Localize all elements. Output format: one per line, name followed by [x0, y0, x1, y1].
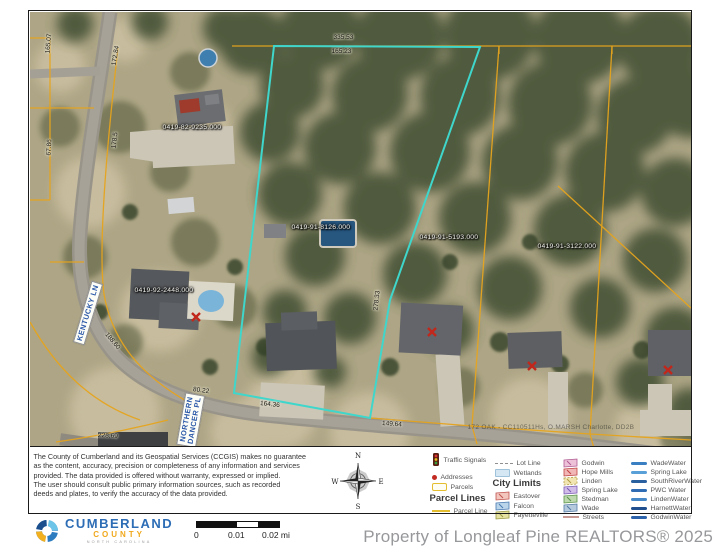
logo-state-tagline: NORTH CAROLINA	[65, 541, 173, 545]
water-line-icon	[631, 498, 647, 501]
legend-label: SouthRiverWater	[651, 478, 703, 485]
compass-n-label: N	[354, 452, 360, 460]
parcel-id-label: 0419-91-5193.000	[420, 234, 479, 241]
legend-item-traffic-signals: Traffic Signals	[432, 455, 487, 465]
parcel-line-icon	[432, 510, 450, 512]
realtors-watermark: Property of Longleaf Pine REALTORS® 2025	[363, 527, 713, 547]
logo-county-name: CUMBERLAND	[65, 517, 173, 530]
compass-star	[340, 463, 376, 499]
cumberland-county-logo: CUMBERLAND COUNTY NORTH CAROLINA	[34, 517, 173, 545]
city-flag-icon	[495, 491, 510, 501]
dimension-label: 178.5	[110, 131, 119, 148]
legend-label: Addresses	[441, 474, 473, 481]
legend-label: Spring Lake	[582, 487, 618, 494]
water-line-icon	[631, 462, 647, 465]
legend-label: HarnettWater	[651, 505, 691, 512]
water-line-icon	[631, 507, 647, 510]
dimension-label: 228.69	[97, 432, 117, 440]
legend-item-addresses: Addresses	[432, 472, 473, 482]
compass-s-label: S	[355, 503, 360, 511]
legend-item-wetlands: Wetlands	[495, 468, 542, 478]
dimension-label: 164.36	[259, 400, 280, 409]
scale-segment	[258, 522, 279, 527]
legend-label: Eastover	[514, 493, 541, 500]
scale-tick-label: 0	[194, 530, 199, 540]
streets-line-icon	[563, 516, 579, 518]
legend-label: Traffic Signals	[444, 457, 487, 464]
legend-label: Parcels	[451, 484, 474, 491]
legend-item-parcels: Parcels	[432, 482, 474, 492]
parcel-rect-icon	[432, 483, 447, 491]
disclaimer-line: provided. The data provided is offered w…	[34, 471, 324, 480]
dimension-label: 67.86	[45, 139, 53, 156]
compass-rose: N W E S	[330, 449, 386, 516]
water-line-icon	[631, 489, 647, 492]
legend-label: Lot Line	[517, 460, 541, 467]
parcel-id-label: 0419-92-2448.000	[135, 287, 194, 294]
legend-header-city-limits: City Limits	[493, 478, 542, 489]
scale-tick-label: 0.01	[228, 530, 245, 540]
dimension-label: 165.07	[44, 33, 53, 53]
water-line-icon	[631, 480, 647, 483]
legend-label: Parcel Line	[454, 508, 488, 515]
disclaimer-line: The County of Cumberland and its Geospat…	[34, 452, 324, 461]
wetlands-icon	[495, 469, 510, 477]
legend-item-godwinwater: GodwinWater	[631, 512, 692, 522]
legend-item-eastover: Eastover	[495, 491, 541, 501]
compass-e-label: E	[378, 478, 383, 486]
gis-parcel-map-sheet: 0419-82-9235.000 0419-91-8126.000 0419-9…	[0, 0, 720, 556]
legend-label: Hope Mills	[582, 469, 614, 476]
legend-label: Streets	[583, 514, 605, 521]
legend-label: Falcon	[514, 503, 534, 510]
water-line-icon	[631, 471, 647, 474]
aerial-imagery	[30, 12, 691, 447]
legend-label: LindenWater	[651, 496, 689, 503]
map-footer-strip: The County of Cumberland and its Geospat…	[30, 446, 691, 513]
compass-w-label: W	[331, 478, 339, 486]
legend-item-fayetteville: Fayetteville	[495, 510, 548, 520]
legend-label: GodwinWater	[651, 514, 692, 521]
legend-item-parcel-line: Parcel Line	[432, 506, 488, 516]
scale-segment	[237, 522, 258, 527]
parcel-id-label: 0419-91-8126.000	[292, 224, 351, 231]
parcel-id-label: 0419-82-9235.000	[163, 124, 222, 131]
parcel-id-label: 0419-91-3122.000	[538, 243, 597, 250]
legend-label: Linden	[582, 478, 602, 485]
disclaimer-line: The user should consult public primary i…	[34, 480, 324, 489]
logo-county-word: COUNTY	[65, 531, 173, 539]
dimension-label: 278.33	[372, 290, 381, 311]
dimension-label: 149.64	[381, 420, 401, 428]
legend-label: Spring Lake	[651, 469, 687, 476]
dimension-label: 335.53	[334, 34, 354, 41]
disclaimer-text: The County of Cumberland and its Geospat…	[34, 452, 324, 498]
legend-label: PWC Water	[651, 487, 687, 494]
map-note: 172 OAK - CC110511Hs, O.MARSH Charlotte,…	[468, 424, 635, 431]
city-flag-icon	[495, 510, 510, 520]
lot-line-icon	[495, 463, 513, 464]
legend-item-streets: Streets	[563, 512, 605, 522]
scale-bar-graphic	[196, 521, 280, 528]
legend-label: Godwin	[582, 460, 605, 467]
county-logo-icon	[34, 517, 60, 545]
aerial-map: 0419-82-9235.000 0419-91-8126.000 0419-9…	[30, 12, 691, 447]
address-dot-icon	[432, 475, 437, 480]
legend-label: WadeWater	[651, 460, 686, 467]
legend-item-lot-line: Lot Line	[495, 458, 541, 468]
legend-label: Wade	[582, 505, 600, 512]
water-line-icon	[631, 516, 647, 519]
scale-bar: 0 0.01 0.02 mi	[196, 521, 296, 541]
legend-header-parcel-lines: Parcel Lines	[430, 493, 486, 504]
dimension-label: 165.23	[332, 48, 352, 55]
disclaimer-line: as the content, accuracy, precision or c…	[34, 461, 324, 470]
legend-label: Fayetteville	[514, 512, 548, 519]
side-road	[30, 71, 100, 74]
pool-round	[199, 49, 217, 67]
scale-segment	[197, 522, 237, 527]
disclaimer-line: deeds and plates, to verify the accuracy…	[34, 489, 324, 498]
legend-label: Wetlands	[514, 470, 542, 477]
traffic-signal-icon	[432, 453, 440, 467]
scale-tick-label: 0.02 mi	[262, 530, 290, 540]
legend-label: Stedman	[582, 496, 609, 503]
